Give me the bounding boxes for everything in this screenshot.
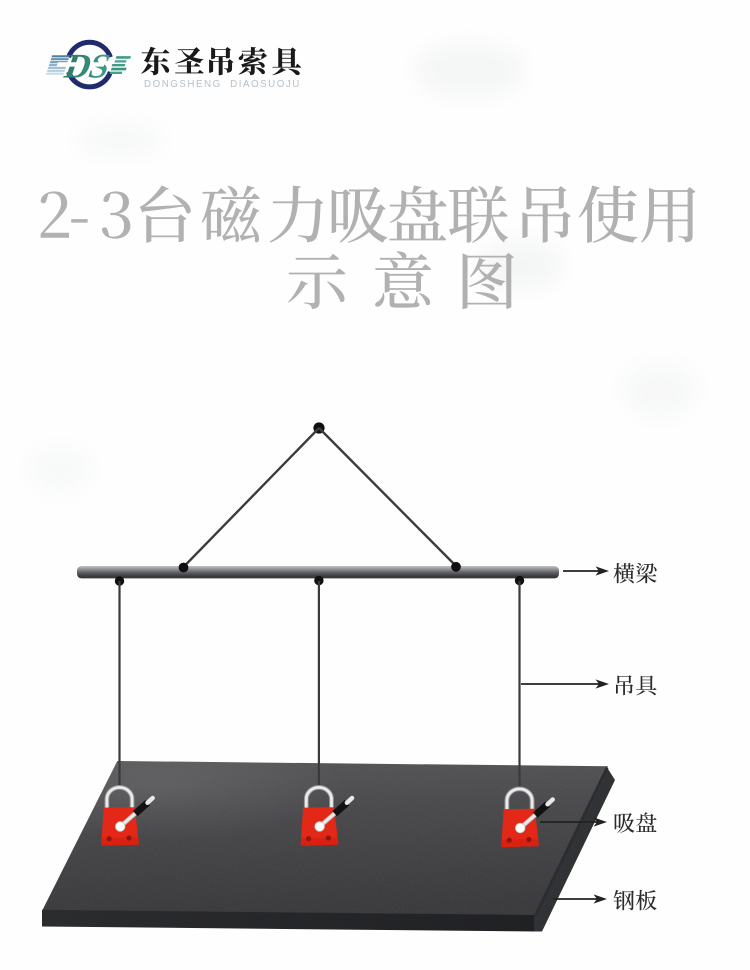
- svg-text:DONGSHENG DIAOSUOJU: DONGSHENG DIAOSUOJU: [144, 79, 301, 90]
